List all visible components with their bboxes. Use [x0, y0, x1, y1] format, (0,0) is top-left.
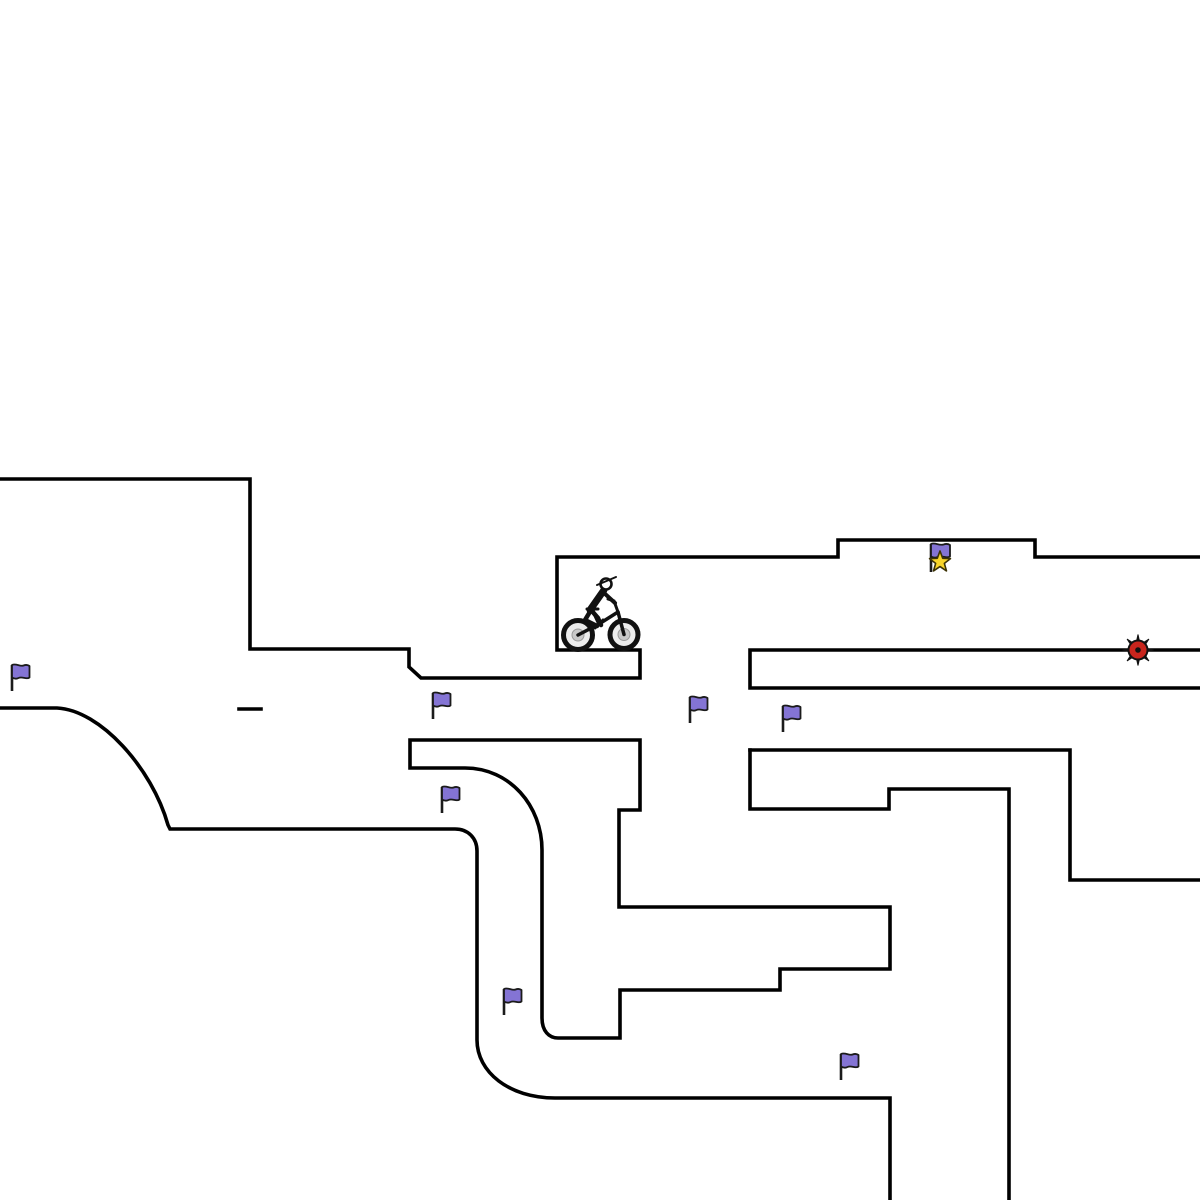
terrain-island-polygon	[410, 740, 890, 1038]
checkpoint-flag	[690, 696, 708, 723]
checkpoint-flag	[442, 786, 460, 813]
flag-cloth	[783, 705, 801, 719]
mine-hazard-icon	[1123, 635, 1154, 666]
flag-cloth	[442, 786, 460, 800]
checkpoint-flag	[504, 988, 522, 1015]
rider-body	[603, 592, 615, 603]
flag-cloth	[690, 696, 708, 710]
flag-cloth	[504, 988, 522, 1002]
flag-cloth	[12, 664, 30, 678]
terrain-left-swoop-ramp	[0, 708, 890, 1200]
game-canvas[interactable]	[0, 0, 1200, 1200]
terrain-upper-terrain	[0, 479, 1200, 678]
terrain-right-upper-shelf	[750, 750, 1200, 880]
flag-cloth	[841, 1053, 859, 1067]
goal-star-flag	[930, 543, 951, 572]
checkpoint-flag	[12, 664, 30, 691]
mine-core	[1135, 647, 1141, 653]
flag-cloth	[433, 692, 451, 706]
checkpoint-flag	[841, 1053, 859, 1080]
game-stage	[0, 0, 1200, 1200]
checkpoint-flag	[433, 692, 451, 719]
terrain-right-inner-wall	[750, 750, 1009, 1200]
checkpoint-flag	[783, 705, 801, 732]
rider-sprite	[564, 577, 639, 650]
